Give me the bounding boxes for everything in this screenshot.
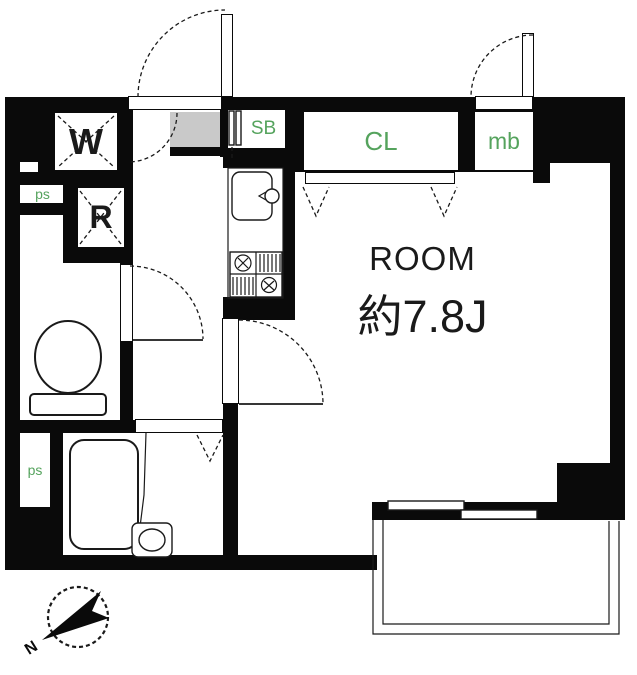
stove-burner-cross bbox=[238, 258, 248, 268]
pipe-space-upper: ps bbox=[22, 185, 63, 203]
toilet-door-opening bbox=[120, 264, 133, 342]
room-door-arc bbox=[239, 320, 323, 404]
closet-fold-mark bbox=[303, 187, 329, 216]
washer-label: W bbox=[69, 121, 103, 163]
wall-window bbox=[372, 502, 557, 520]
wall-left bbox=[5, 97, 20, 570]
entry-step-edge bbox=[170, 147, 220, 156]
compass-north-label: N bbox=[22, 638, 41, 659]
shoe-box-door bbox=[229, 111, 234, 145]
entry-floor bbox=[170, 112, 220, 147]
entrance-door-leaf bbox=[221, 14, 233, 97]
entrance-door-arc bbox=[138, 10, 225, 97]
kitchen-counter bbox=[228, 168, 283, 298]
closet-fold-mark bbox=[431, 187, 457, 216]
closet: CL bbox=[302, 110, 460, 172]
gas-stove bbox=[230, 252, 282, 297]
stove-burner-cross bbox=[264, 281, 274, 290]
shoe-box-label: SB bbox=[251, 118, 276, 140]
pipe-space-upper-label: ps bbox=[35, 186, 50, 202]
faucet-spout bbox=[259, 192, 266, 200]
faucet-icon bbox=[265, 189, 279, 203]
shoe-box: SB bbox=[242, 110, 285, 148]
meter-box-opening bbox=[475, 96, 533, 110]
balcony-outer bbox=[373, 520, 619, 634]
stove-grill-lines bbox=[233, 254, 280, 295]
floor-plan: W R ps ps SB CL mb bbox=[0, 0, 637, 675]
bathtub bbox=[70, 440, 138, 549]
room-door-leaf bbox=[222, 318, 239, 404]
toilet-bowl bbox=[35, 321, 101, 393]
closet-door-track bbox=[305, 172, 455, 184]
stove-burner-cross bbox=[238, 258, 248, 268]
bath-partition-line bbox=[140, 433, 146, 527]
room-size: 約7.8J bbox=[325, 280, 520, 345]
bath-drain-unit bbox=[132, 523, 172, 557]
wall-top-mid bbox=[222, 97, 475, 110]
pipe-space-lower-label: ps bbox=[28, 462, 43, 478]
wall-kitchen-right bbox=[283, 148, 295, 310]
wall-closet-left bbox=[283, 97, 302, 172]
balcony-inner bbox=[383, 520, 609, 624]
bathroom-fold-mark bbox=[197, 435, 223, 461]
wall-ps-lower-right bbox=[50, 433, 63, 555]
meter-box-label: mb bbox=[488, 128, 520, 155]
wall-bottom-right-chunk bbox=[557, 463, 625, 520]
toilet-tank bbox=[30, 394, 106, 415]
pipe-space-lower: ps bbox=[20, 433, 50, 507]
toilet-door-arc bbox=[130, 266, 203, 339]
wall-ps-upper-below bbox=[20, 203, 63, 215]
room-name: ROOM bbox=[325, 240, 520, 278]
entrance-opening bbox=[128, 96, 222, 110]
compass-icon: N bbox=[22, 587, 109, 659]
shoe-box-door bbox=[236, 111, 241, 145]
stove-burner bbox=[262, 278, 277, 293]
bathroom-door-strip bbox=[135, 419, 223, 433]
room-label: ROOM 約7.8J bbox=[325, 240, 520, 345]
wall-toilet-bottom bbox=[20, 420, 135, 433]
wall-closet-meterbox-divider bbox=[460, 97, 473, 172]
meter-box-door-leaf bbox=[522, 33, 534, 97]
wall-right bbox=[610, 97, 625, 520]
wall-bottom bbox=[5, 555, 377, 570]
wall-kitchen-top bbox=[223, 148, 285, 168]
washer-space: W bbox=[55, 113, 117, 170]
refrigerator-space: R bbox=[78, 188, 124, 247]
wall-entry-right bbox=[220, 110, 228, 157]
wall-top-right-chunk bbox=[533, 110, 610, 163]
meter-box: mb bbox=[473, 110, 535, 172]
bath-drain bbox=[139, 529, 165, 551]
stove-burner-cross bbox=[264, 281, 274, 290]
kitchen-sink bbox=[232, 172, 272, 220]
wall-bath-right bbox=[223, 403, 238, 570]
refrigerator-label: R bbox=[89, 199, 112, 236]
wall-top-left bbox=[5, 97, 128, 110]
wall-top-right-step bbox=[533, 163, 550, 183]
stove-burner bbox=[235, 255, 251, 271]
closet-label: CL bbox=[364, 126, 397, 157]
left-wall-vent bbox=[20, 162, 38, 172]
